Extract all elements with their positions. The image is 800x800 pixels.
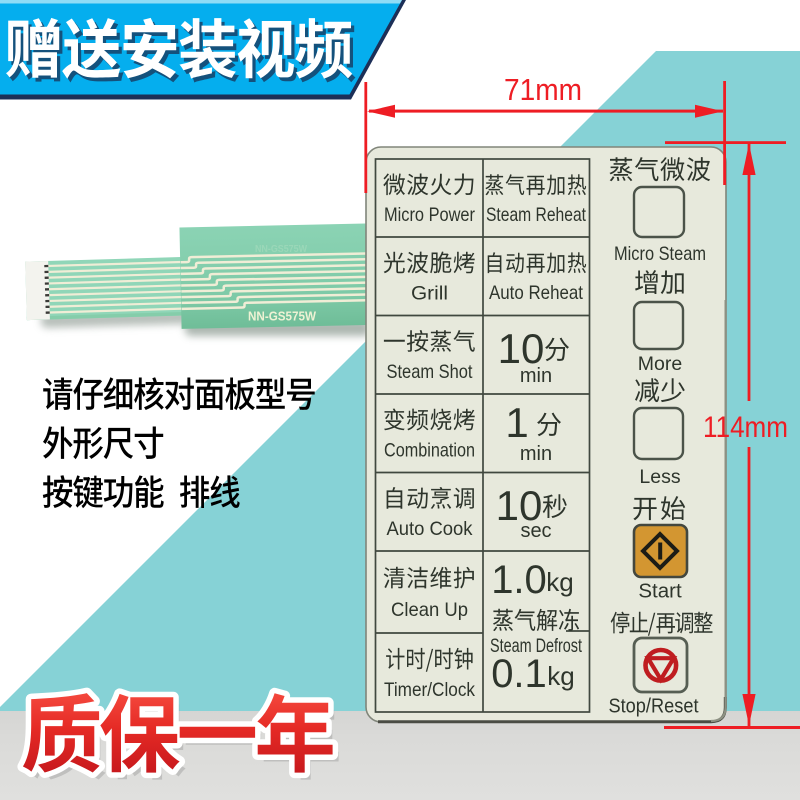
svg-text:1: 1 <box>505 399 528 446</box>
svg-text:114mm: 114mm <box>703 411 788 444</box>
svg-text:Grill: Grill <box>411 283 448 305</box>
svg-text:Micro Power: Micro Power <box>384 204 475 226</box>
svg-text:1.0: 1.0 <box>491 558 547 602</box>
svg-text:kg: kg <box>546 567 573 597</box>
svg-text:min: min <box>520 443 552 465</box>
svg-text:kg: kg <box>547 661 574 691</box>
svg-text:Combination: Combination <box>384 440 475 462</box>
svg-text:NN-GS575W: NN-GS575W <box>255 243 307 255</box>
svg-text:Clean Up: Clean Up <box>391 599 468 621</box>
svg-text:min: min <box>520 365 552 387</box>
svg-text:Micro Steam: Micro Steam <box>614 243 706 265</box>
svg-text:Timer/Clock: Timer/Clock <box>384 679 475 701</box>
svg-text:Start: Start <box>638 580 682 603</box>
svg-text:More: More <box>638 353 682 375</box>
svg-text:Less: Less <box>639 466 680 488</box>
svg-text:NN-GS575W: NN-GS575W <box>248 309 317 324</box>
svg-text:0.1: 0.1 <box>491 652 547 696</box>
svg-text:Stop/Reset: Stop/Reset <box>609 696 699 718</box>
svg-text:Auto Reheat: Auto Reheat <box>489 282 583 304</box>
svg-text:sec: sec <box>520 520 551 542</box>
svg-text:Steam Shot: Steam Shot <box>387 361 473 383</box>
svg-text:Steam Reheat: Steam Reheat <box>486 204 586 226</box>
svg-text:Auto Cook: Auto Cook <box>387 518 473 540</box>
svg-text:71mm: 71mm <box>504 72 582 107</box>
